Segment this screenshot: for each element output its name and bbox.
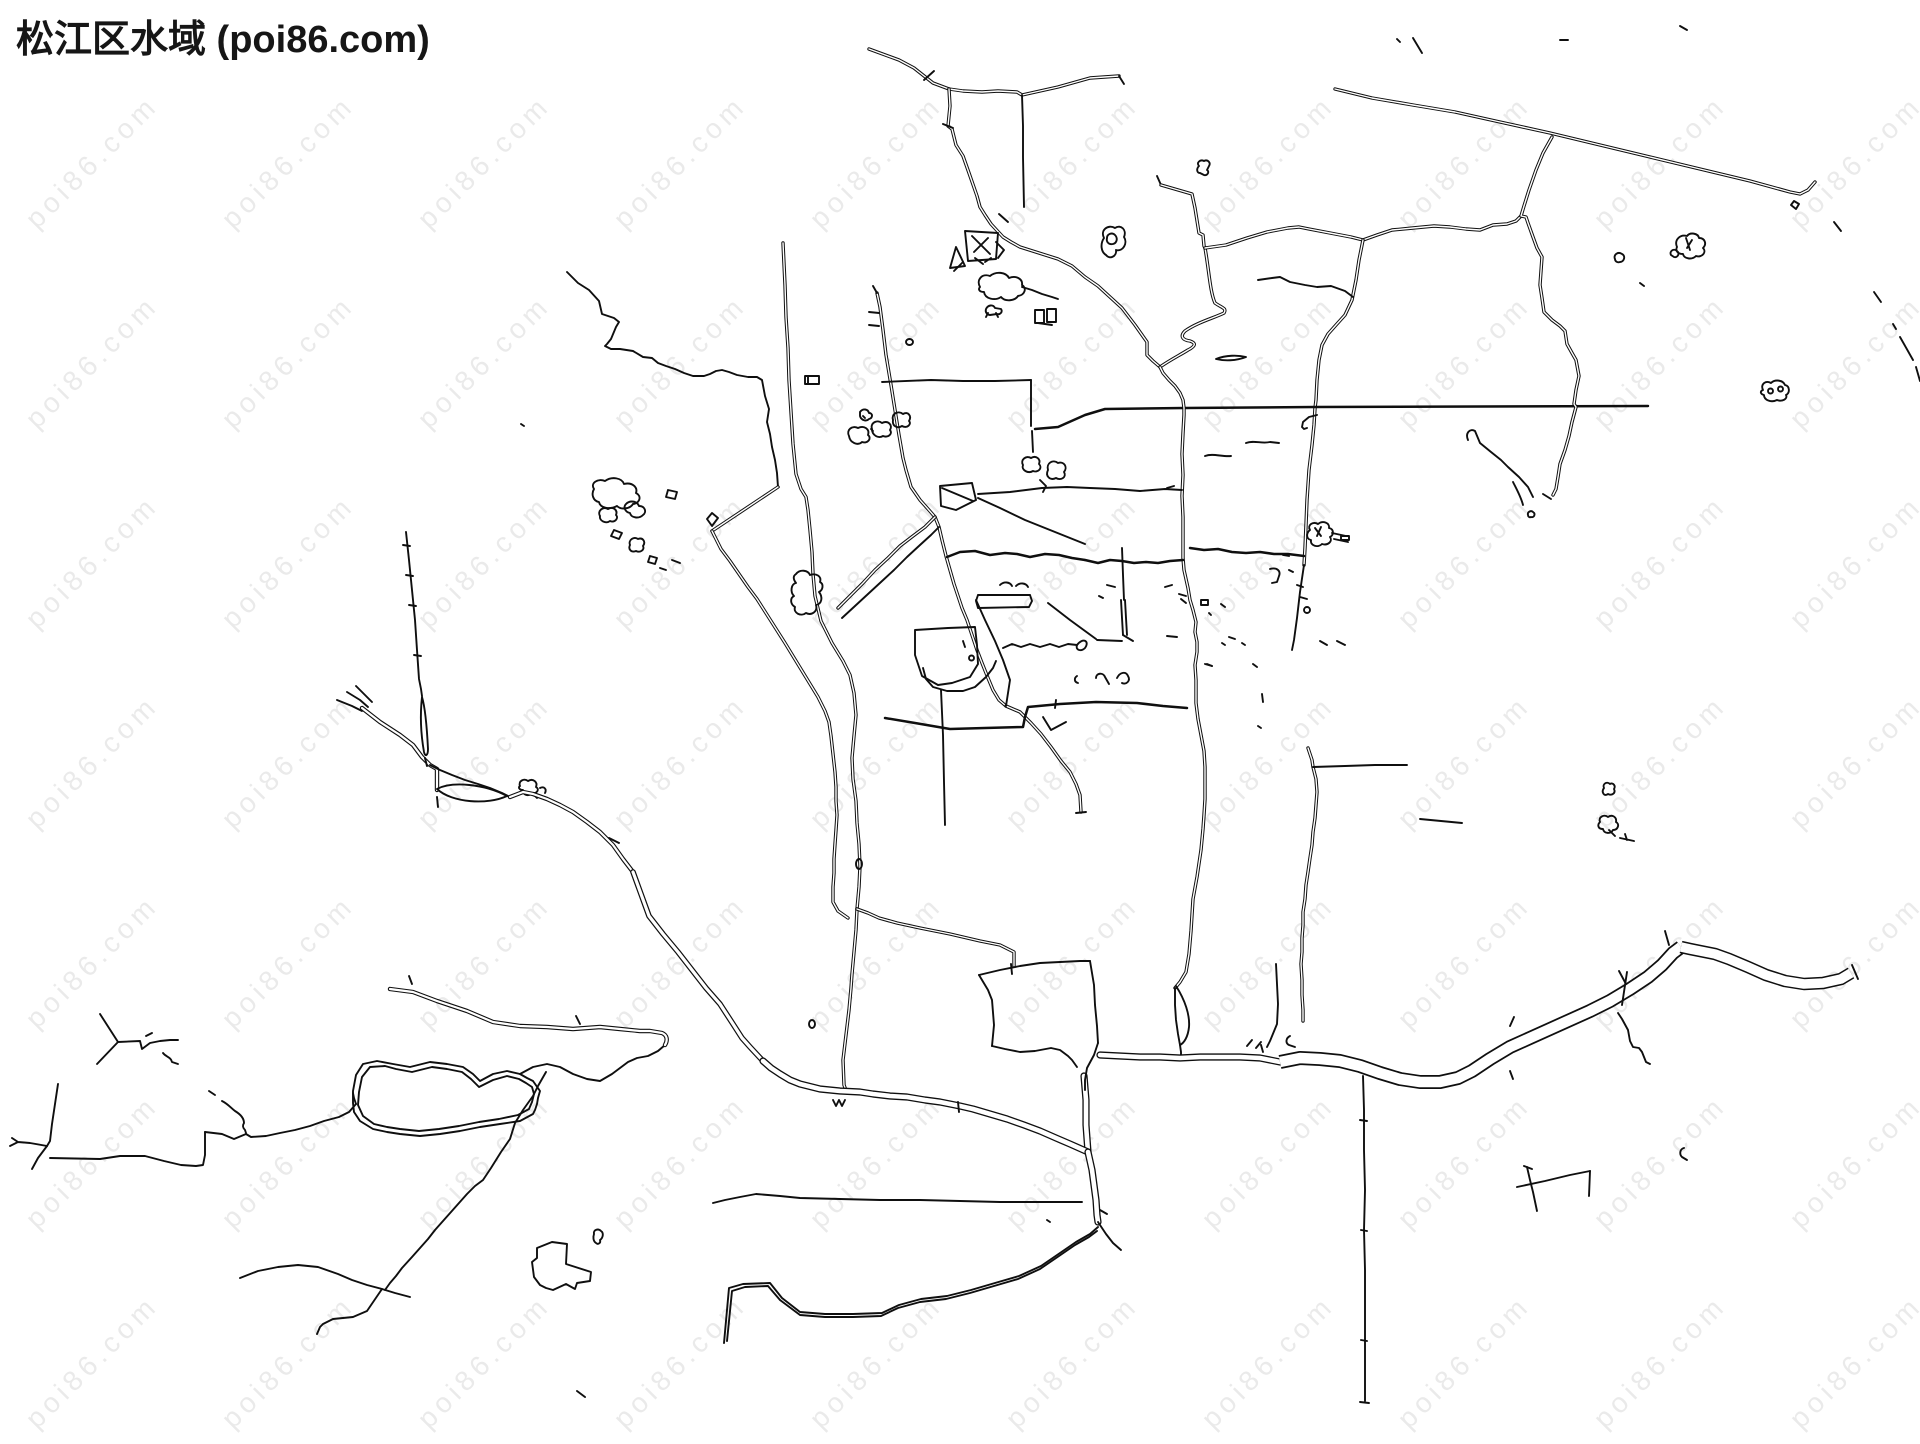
svg-text:松江区水域 (poi86.com): 松江区水域 (poi86.com) — [16, 19, 430, 61]
